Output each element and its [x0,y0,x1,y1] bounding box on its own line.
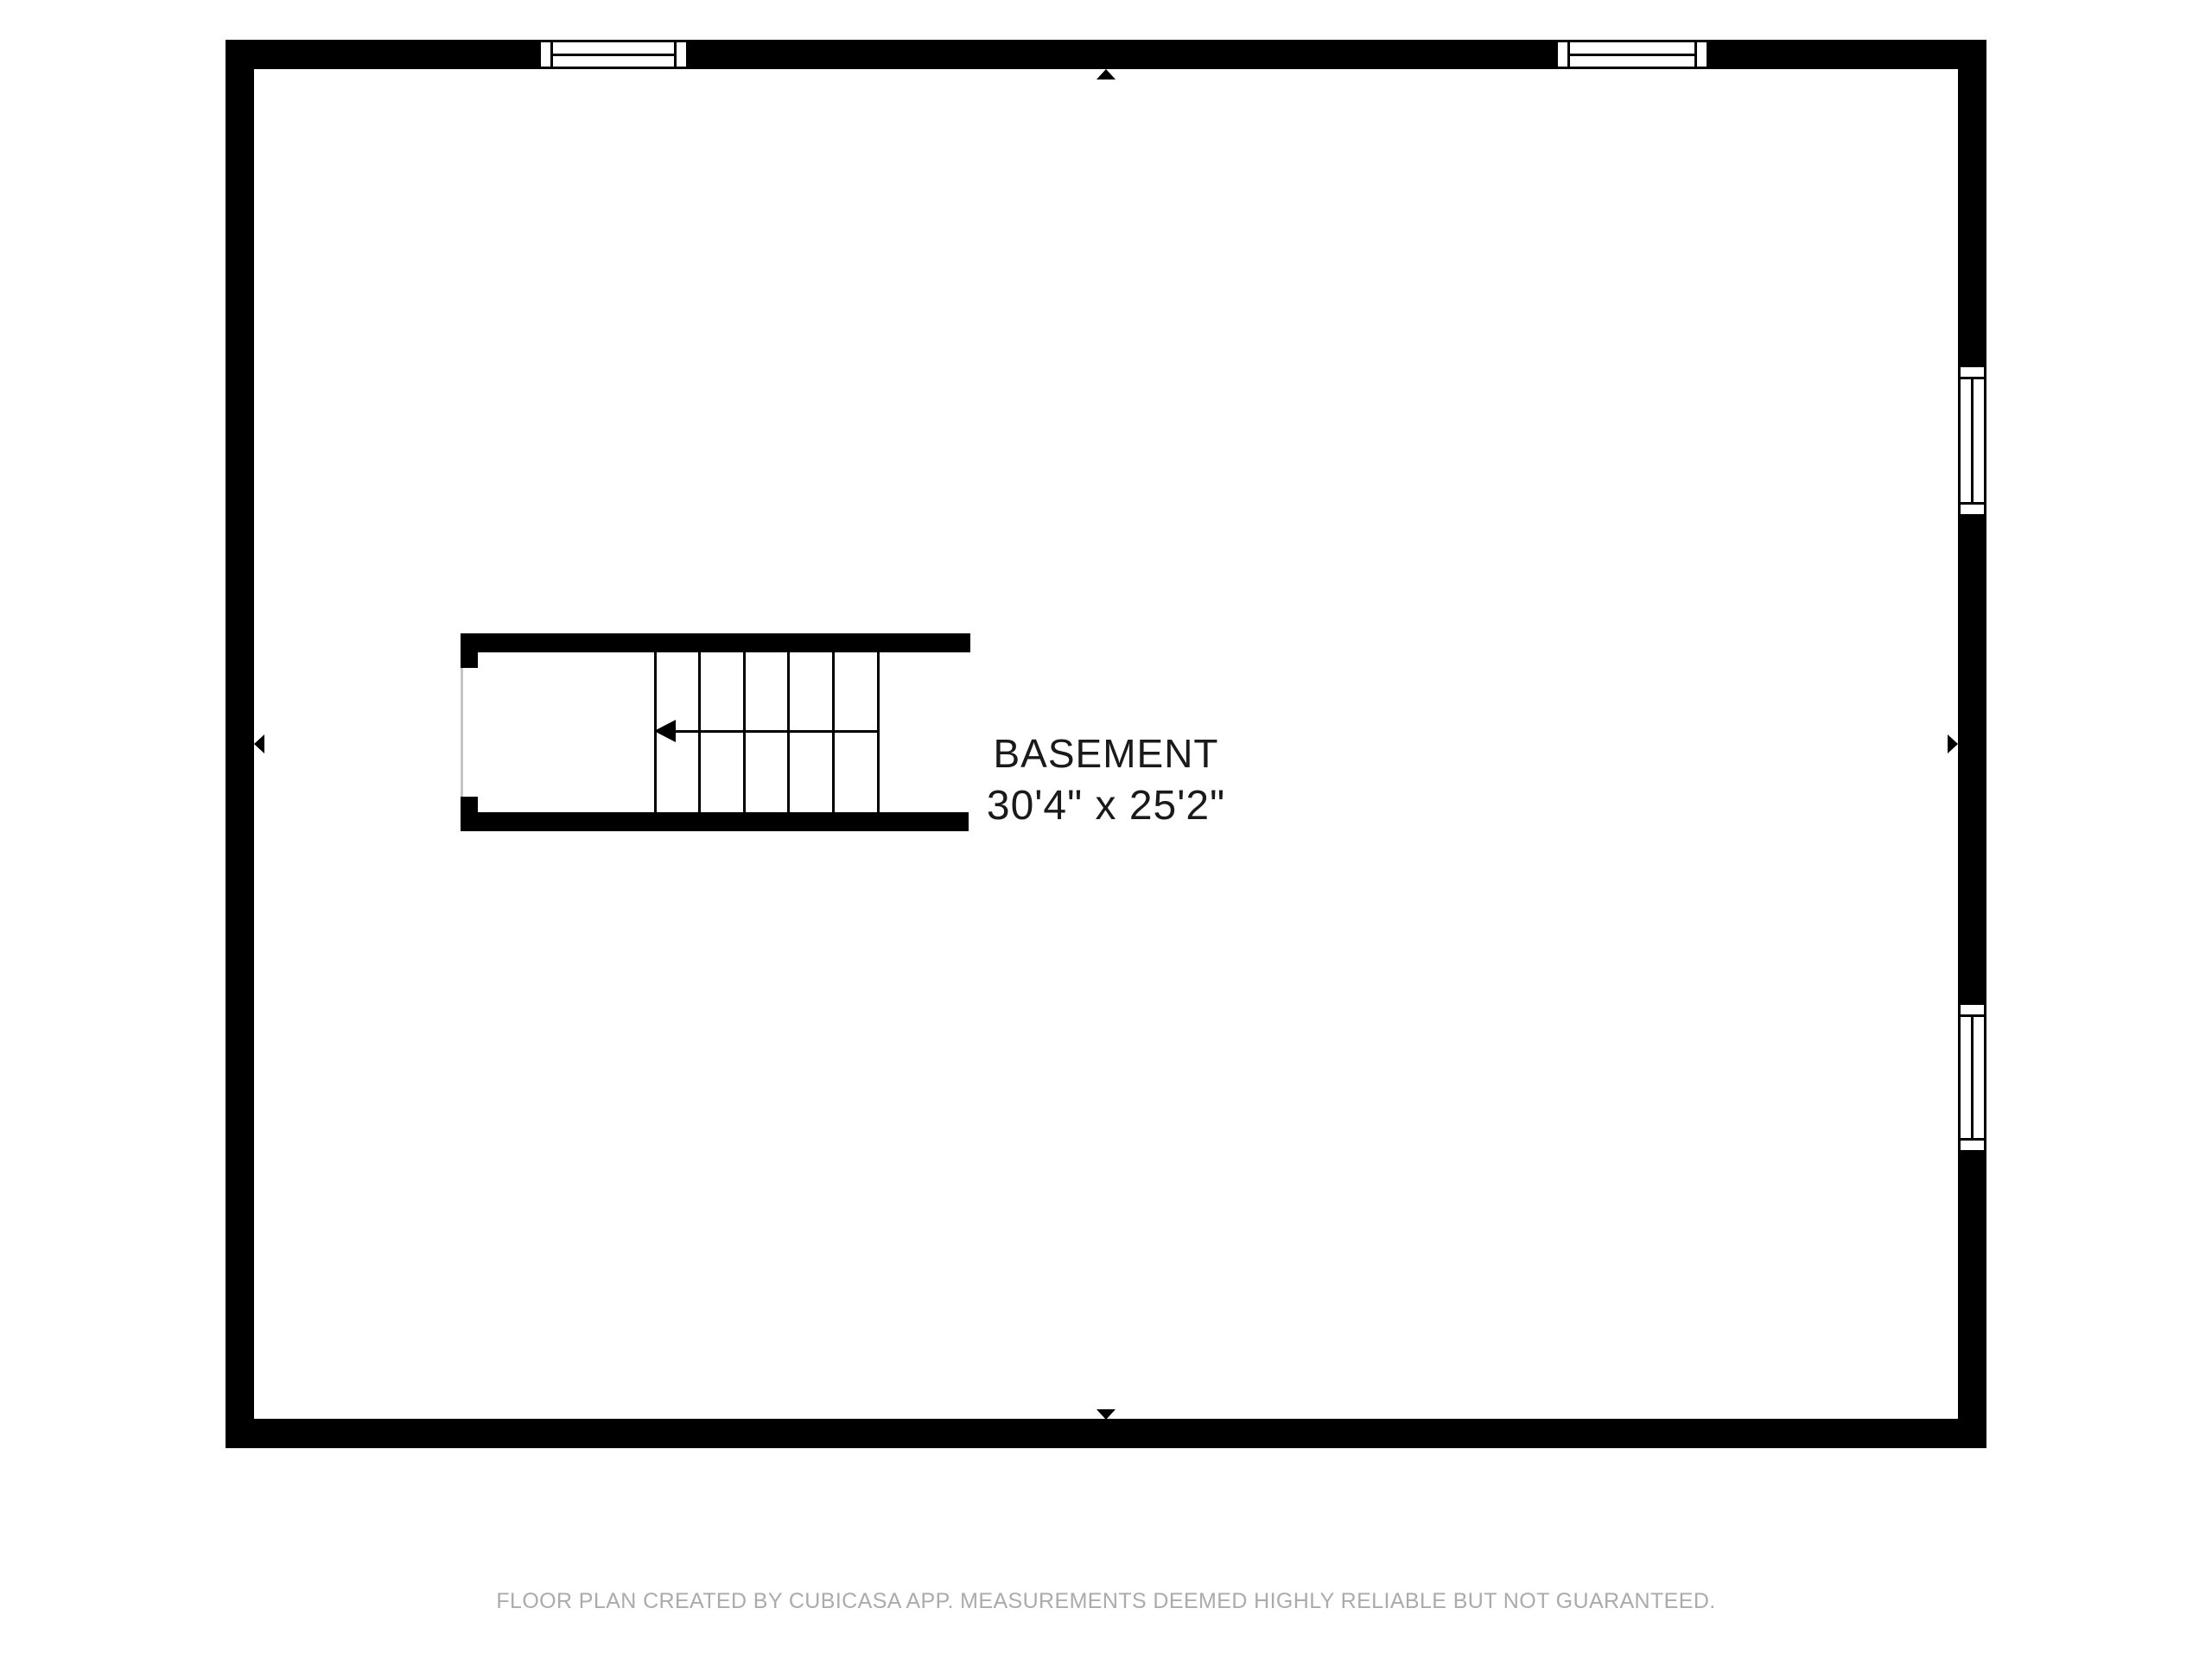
stair-wall-top [461,633,970,652]
wall-right [1958,40,1986,1448]
wall-left [226,40,254,1448]
triangle-left-icon [254,734,264,753]
window-glass-line [1971,378,1974,503]
arrow-left-icon [654,720,676,742]
room-label-group: BASEMENT 30'4" x 25'2" [868,728,1344,833]
floor-plan-canvas: BASEMENT 30'4" x 25'2" FLOOR PLAN CREATE… [0,0,2212,1659]
stair-wall-stub-top [461,652,478,668]
footer-disclaimer: FLOOR PLAN CREATED BY CUBICASA APP. MEAS… [0,1588,2212,1614]
window-right-upper [1958,365,1986,517]
window-right-lower [1958,1002,1986,1153]
room-name: BASEMENT [868,728,1344,779]
window-glass-line [552,54,675,56]
room-dimensions: 30'4" x 25'2" [868,779,1344,833]
triangle-up-icon [1096,69,1116,79]
stair-wall-stub-bottom [461,797,478,812]
window-top-left [538,40,689,69]
wall-top [226,40,1986,69]
wall-bottom [226,1419,1986,1448]
window-glass-line [1971,1016,1974,1139]
triangle-down-icon [1096,1409,1116,1420]
stair-opening-edge [461,668,463,797]
triangle-right-icon [1948,734,1958,753]
window-glass-line [1569,54,1695,56]
window-top-right [1555,40,1709,69]
stair-flight-divider [674,730,878,733]
